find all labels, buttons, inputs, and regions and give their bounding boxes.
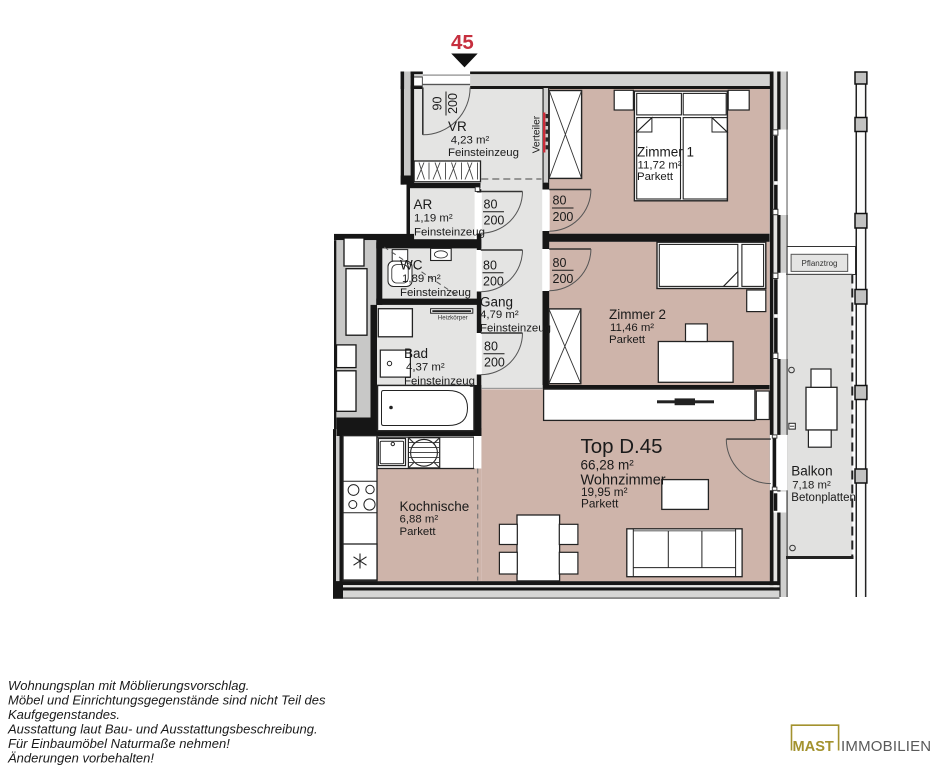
svg-text:Für Einbaumöbel Naturmaße nehm: Für Einbaumöbel Naturmaße nehmen! (8, 736, 230, 751)
svg-text:11,46 m²: 11,46 m² (610, 322, 654, 334)
svg-text:Feinsteinzeug: Feinsteinzeug (400, 287, 471, 299)
svg-text:80: 80 (483, 259, 497, 273)
svg-text:MAST: MAST (793, 739, 834, 755)
svg-text:AR: AR (414, 197, 433, 212)
svg-text:Parkett: Parkett (581, 496, 619, 510)
svg-text:45: 45 (451, 31, 474, 54)
svg-text:80: 80 (484, 340, 498, 354)
svg-text:Parkett: Parkett (400, 526, 437, 538)
svg-text:6,88 m²: 6,88 m² (400, 513, 439, 525)
svg-text:200: 200 (484, 214, 505, 228)
svg-text:1,19 m²: 1,19 m² (414, 212, 453, 224)
svg-text:11,72 m²: 11,72 m² (638, 159, 682, 171)
svg-text:200: 200 (483, 275, 504, 289)
svg-text:Gang: Gang (480, 295, 513, 310)
svg-text:Ausstattung laut Bau- und Auss: Ausstattung laut Bau- und Ausstattungsbe… (7, 721, 318, 736)
svg-text:66,28 m²: 66,28 m² (581, 458, 635, 473)
svg-text:Top D.45: Top D.45 (581, 435, 663, 458)
svg-text:200: 200 (446, 93, 460, 114)
svg-text:Pflanztrog: Pflanztrog (801, 259, 837, 268)
svg-text:Wohnungsplan mit Möblierungsvo: Wohnungsplan mit Möblierungsvorschlag. (8, 678, 249, 693)
svg-text:1,89 m²: 1,89 m² (402, 273, 441, 285)
svg-text:WC: WC (400, 258, 423, 273)
svg-text:Feinsteinzeug: Feinsteinzeug (480, 323, 551, 335)
svg-text:Kochnische: Kochnische (400, 499, 470, 514)
svg-text:200: 200 (553, 272, 574, 286)
svg-text:Verteiler: Verteiler (532, 115, 543, 153)
svg-text:Betonplatten: Betonplatten (791, 492, 856, 504)
svg-text:80: 80 (484, 198, 498, 212)
svg-text:Heizkörper: Heizkörper (438, 315, 468, 322)
svg-text:Feinsteinzeug: Feinsteinzeug (448, 147, 519, 159)
svg-text:Änderungen vorbehalten!: Änderungen vorbehalten! (7, 750, 154, 765)
svg-text:Balkon: Balkon (791, 464, 832, 479)
svg-text:7,18 m²: 7,18 m² (792, 480, 831, 492)
svg-text:4,37 m²: 4,37 m² (406, 362, 445, 374)
svg-text:Feinsteinzeug: Feinsteinzeug (404, 375, 475, 387)
svg-text:200: 200 (553, 210, 574, 224)
svg-text:Bad: Bad (404, 346, 428, 361)
svg-text:VR: VR (448, 119, 467, 134)
svg-text:Zimmer 2: Zimmer 2 (609, 307, 666, 322)
svg-text:200: 200 (484, 356, 505, 370)
svg-text:90: 90 (431, 97, 445, 111)
svg-text:Zimmer 1: Zimmer 1 (637, 145, 694, 160)
svg-text:IMMOBILIEN: IMMOBILIEN (841, 738, 931, 755)
svg-text:80: 80 (553, 256, 567, 270)
svg-text:4,23 m²: 4,23 m² (451, 135, 490, 147)
svg-text:4,79 m²: 4,79 m² (480, 309, 519, 321)
svg-text:Parkett: Parkett (609, 334, 646, 346)
svg-text:Möbel und Einrichtungsgegenstä: Möbel und Einrichtungsgegenstände sind n… (8, 692, 326, 707)
svg-text:Feinsteinzeug: Feinsteinzeug (414, 226, 485, 238)
svg-text:Kaufgegenstandes.: Kaufgegenstandes. (8, 707, 120, 722)
svg-text:Parkett: Parkett (637, 171, 674, 183)
svg-text:80: 80 (553, 194, 567, 208)
